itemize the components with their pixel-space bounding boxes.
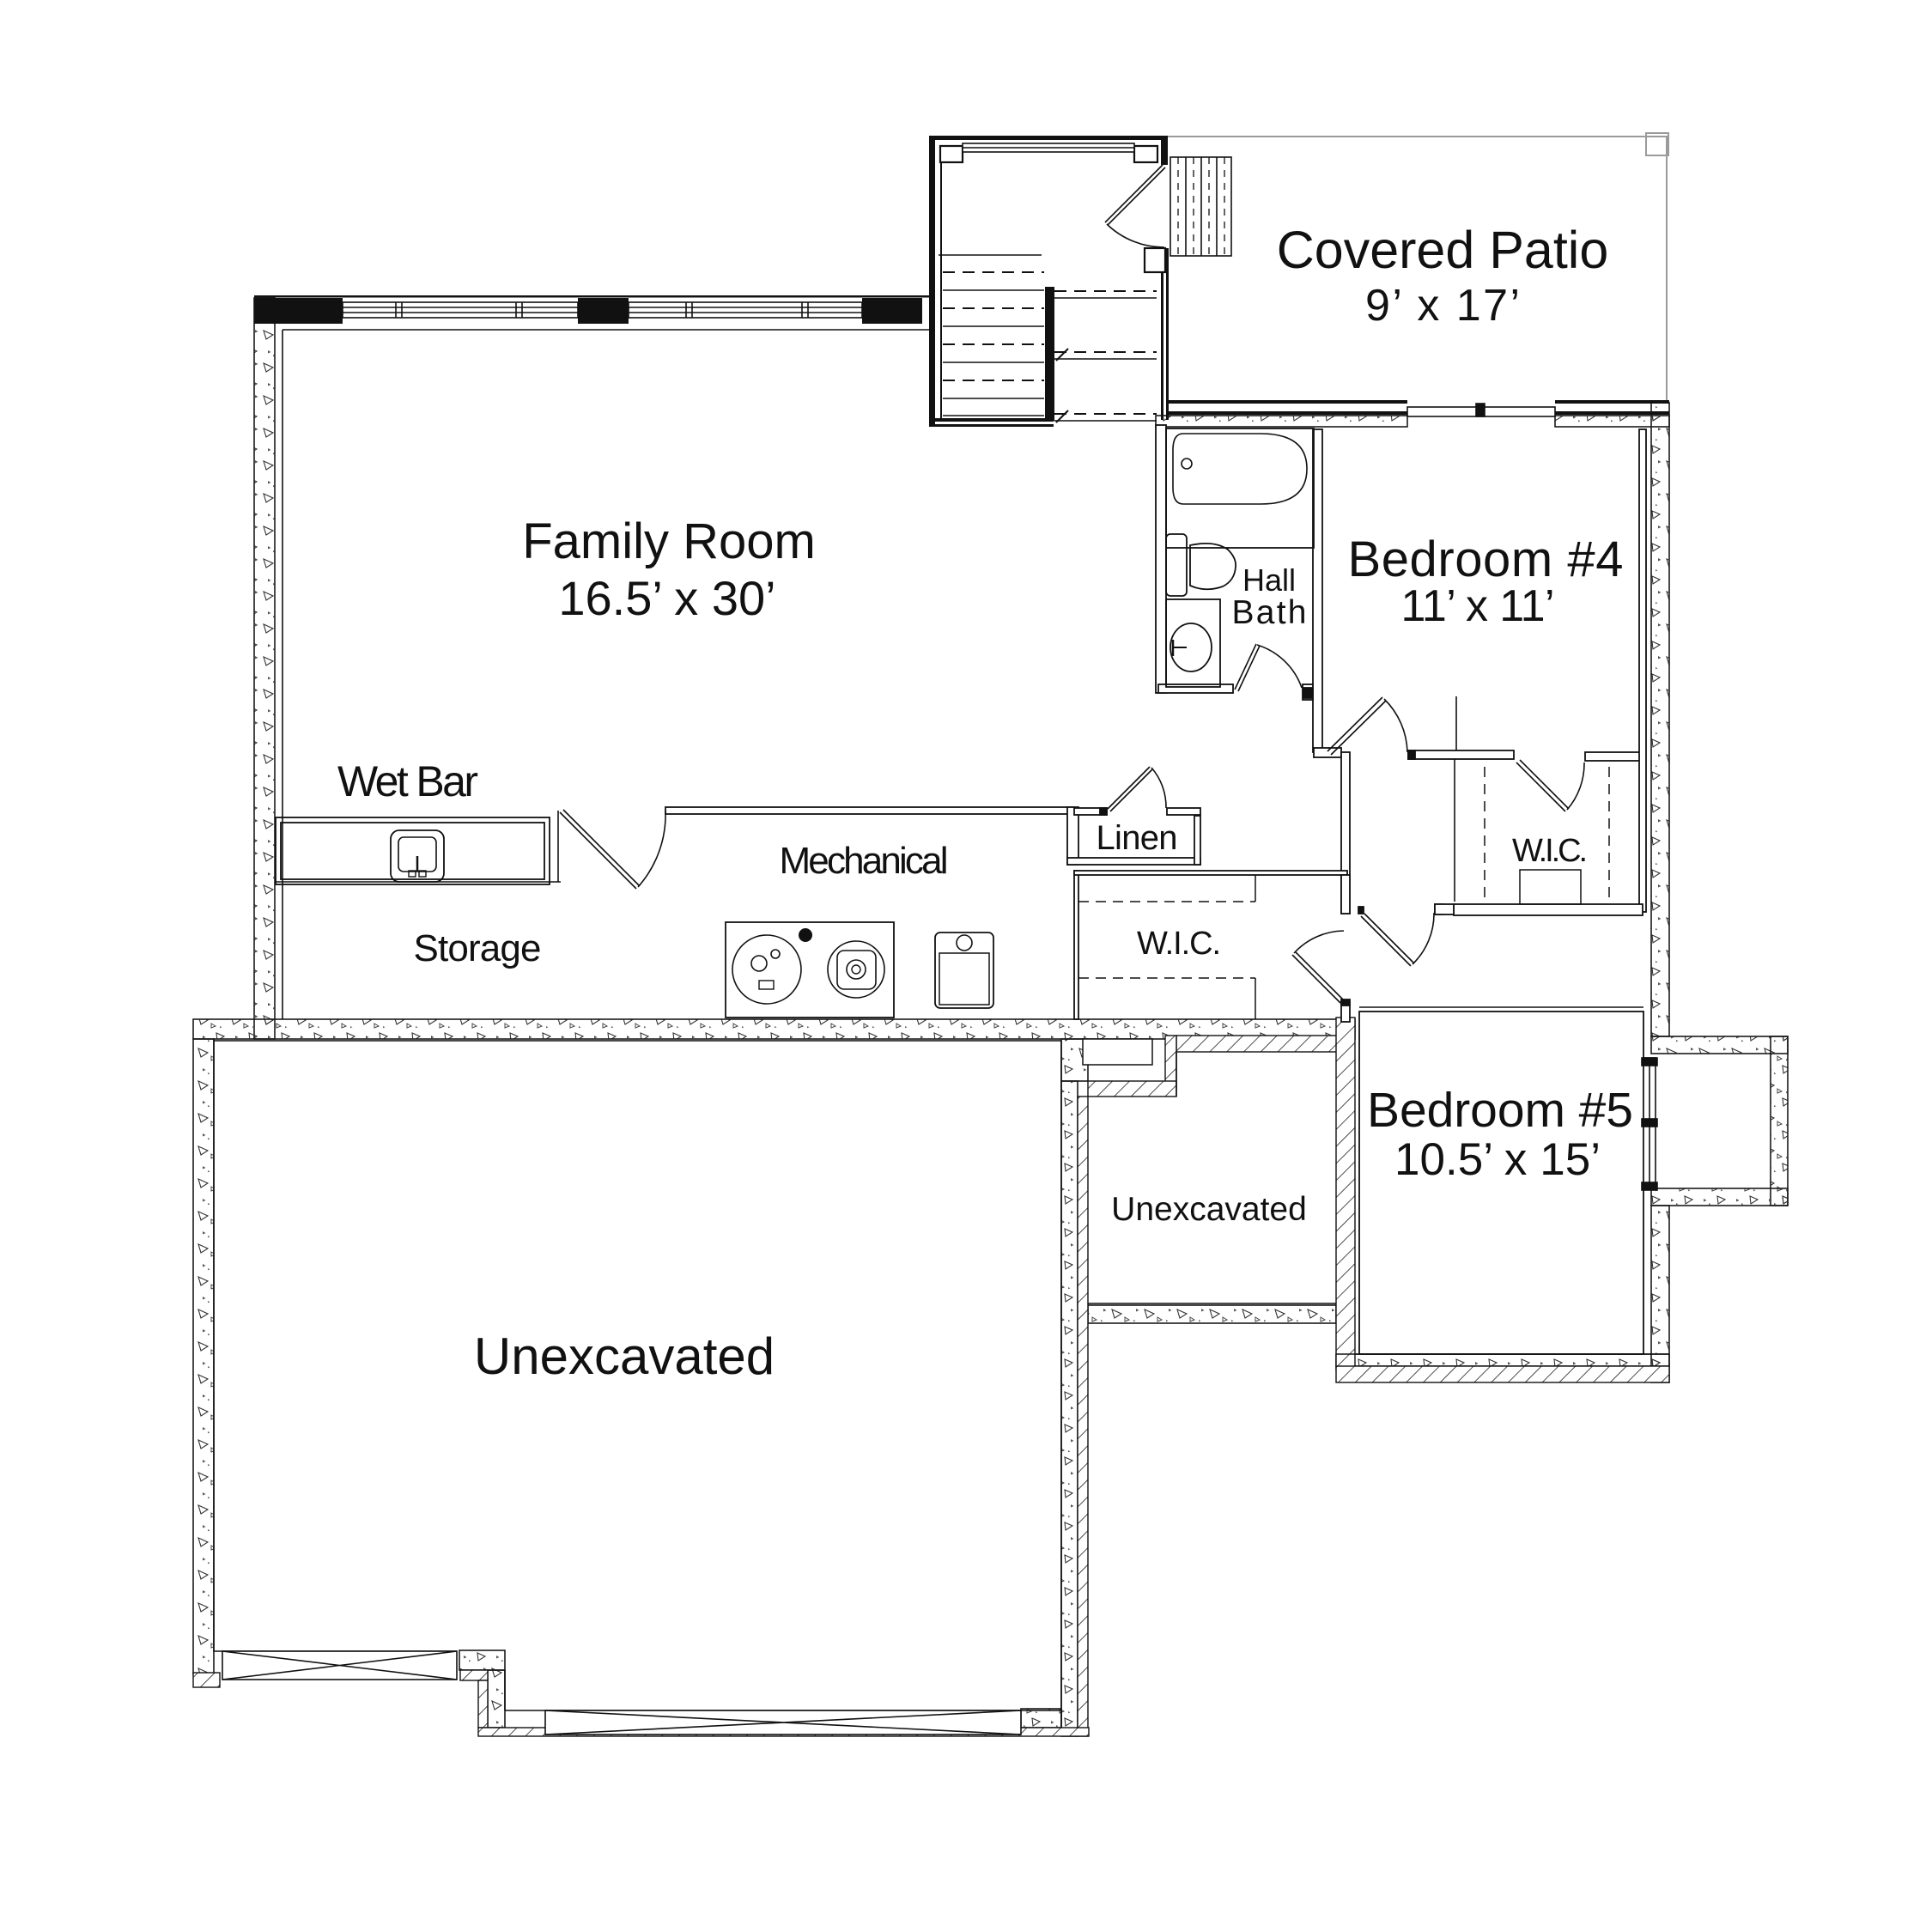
svg-text:W.I.C.: W.I.C. <box>1512 833 1588 869</box>
svg-text:Linen: Linen <box>1097 819 1178 857</box>
svg-text:11’ x 11’: 11’ x 11’ <box>1401 581 1555 631</box>
svg-text:Family Room: Family Room <box>522 513 816 569</box>
svg-text:Wet Bar: Wet Bar <box>337 757 478 805</box>
svg-text:Covered Patio: Covered Patio <box>1277 221 1609 279</box>
svg-text:Mechanical: Mechanical <box>780 840 949 882</box>
svg-text:Unexcavated: Unexcavated <box>474 1327 775 1385</box>
svg-text:Storage: Storage <box>414 927 542 969</box>
svg-text:Bedroom #4: Bedroom #4 <box>1348 532 1624 587</box>
svg-text:10.5’ x 15’: 10.5’ x 15’ <box>1394 1134 1601 1185</box>
svg-text:9’ x 17’: 9’ x 17’ <box>1365 281 1520 331</box>
svg-text:W.I.C.: W.I.C. <box>1137 926 1221 962</box>
svg-text:Bedroom #5: Bedroom #5 <box>1367 1083 1633 1138</box>
svg-text:Bath: Bath <box>1232 594 1307 631</box>
svg-text:Unexcavated: Unexcavated <box>1111 1191 1307 1228</box>
svg-text:Hall: Hall <box>1242 562 1296 598</box>
svg-text:16.5’ x 30’: 16.5’ x 30’ <box>558 571 775 625</box>
